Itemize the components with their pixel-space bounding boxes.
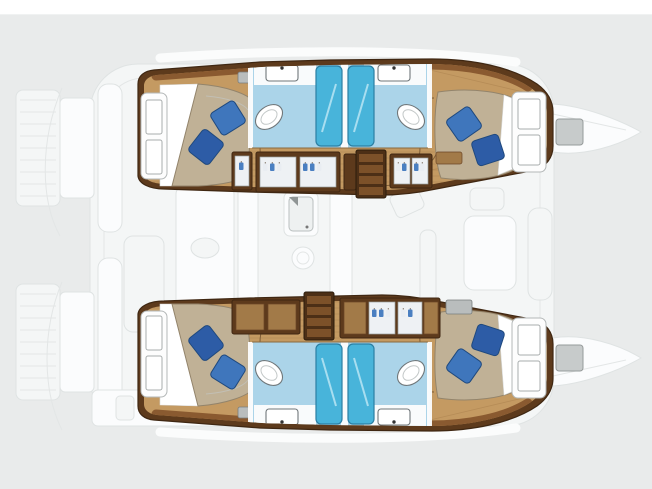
starboard-stairway <box>304 292 334 340</box>
saloon-settee <box>528 208 552 300</box>
refrigerator-column <box>238 186 258 316</box>
port-stairway <box>356 150 386 198</box>
vent-box <box>446 300 472 314</box>
galley-sink <box>284 192 318 236</box>
catamaran-floorplan-svg <box>0 0 652 489</box>
saloon-seat <box>470 188 504 210</box>
dining-table <box>464 216 516 290</box>
floorplan-stage <box>0 0 652 489</box>
cockpit-bulkhead <box>98 84 122 232</box>
top-white-strip <box>0 0 652 14</box>
saloon-bench <box>420 230 436 304</box>
stove-burner <box>292 247 314 269</box>
